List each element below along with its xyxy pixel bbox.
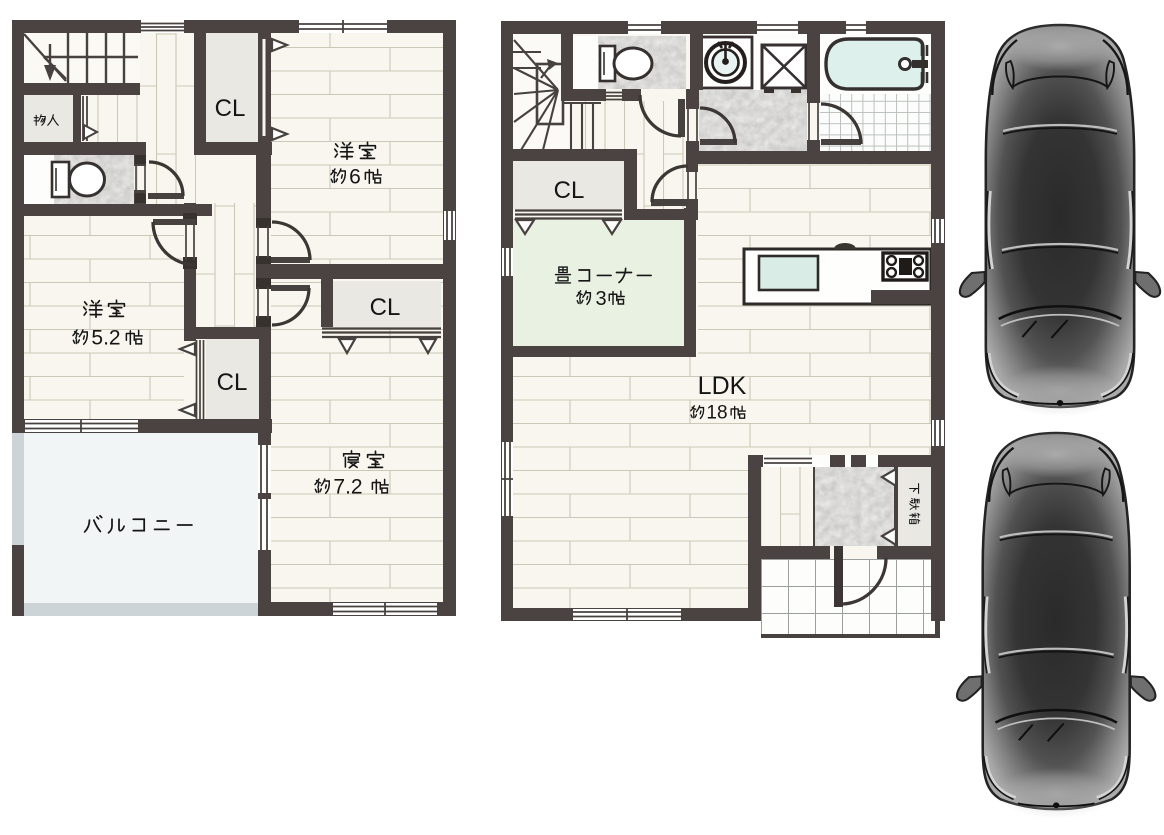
svg-text:CL: CL xyxy=(554,177,585,204)
svg-text:CL: CL xyxy=(215,95,246,122)
svg-text:LDK: LDK xyxy=(698,372,747,400)
svg-text:3: 3 xyxy=(595,288,606,310)
svg-text:5.2: 5.2 xyxy=(91,327,120,350)
svg-text:6: 6 xyxy=(349,166,361,189)
svg-text:CL: CL xyxy=(217,369,248,396)
svg-text:CL: CL xyxy=(370,294,401,321)
svg-text:18: 18 xyxy=(706,403,727,424)
svg-text:7.2: 7.2 xyxy=(333,476,362,499)
